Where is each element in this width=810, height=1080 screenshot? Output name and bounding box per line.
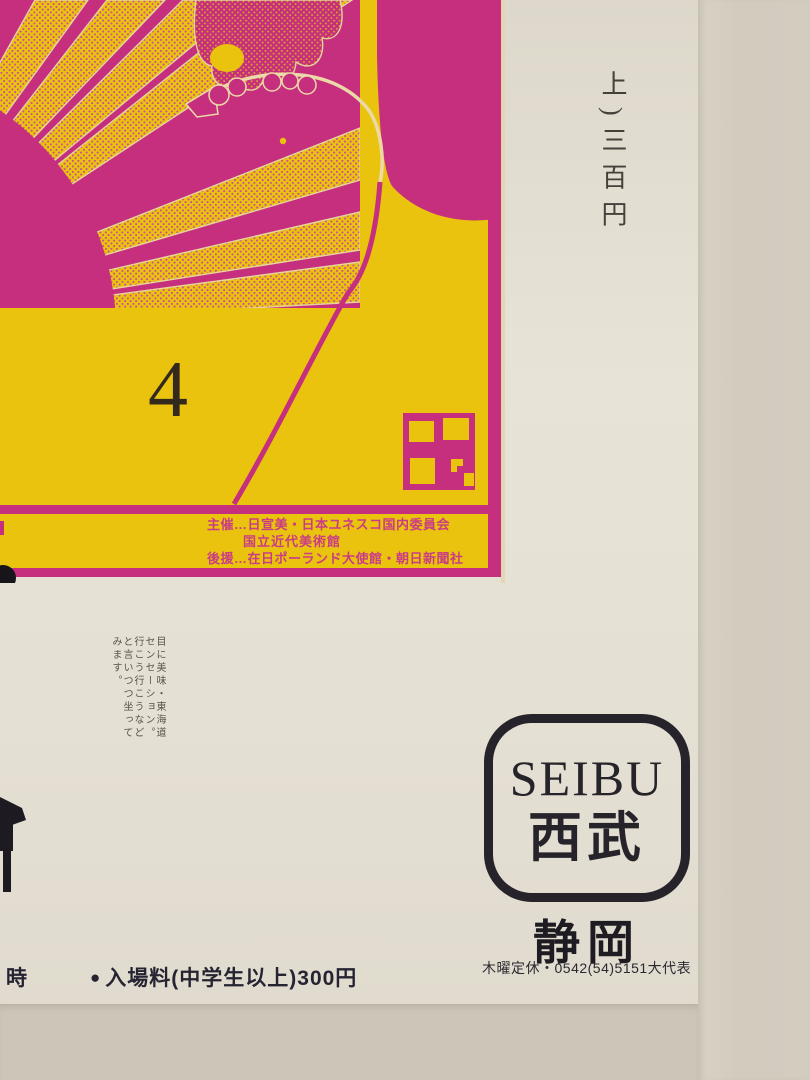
- price-note-vertical: 上)三百円: [594, 70, 631, 240]
- checkered-logo-icon: [403, 413, 475, 490]
- seibu-logo-kanji: 西武: [493, 811, 681, 865]
- background-bottom-surface: [0, 1004, 698, 1080]
- copy-text-vertical: 目に美味・東海道センセーション。行こう行こうなどと言いつつ坐ってみます。: [110, 636, 165, 742]
- number-4-label: 4: [148, 346, 188, 434]
- admission-line: 時●入場料(中学生以上)300円: [6, 962, 357, 992]
- credits-line-2: 国立近代美術館: [243, 534, 341, 549]
- credits-line-3: 後援…在日ポーランド大使館・朝日新聞社: [207, 551, 464, 566]
- store-info: 木曜定休・0542(54)5151大代表: [482, 958, 722, 978]
- credits-line-1: 主催…日宣美・日本ユネスコ国内委員会: [207, 517, 451, 532]
- black-glyph-fragment: [0, 795, 30, 895]
- seibu-logo-latin: SEIBU: [493, 749, 681, 807]
- seibu-logo: SEIBU 西武: [484, 714, 690, 902]
- sunburst-wave-artwork: 4 主催…日宣美・日本ユネスコ国内委員会 国立近代美術館 後援…在日ポーランド大…: [0, 0, 505, 583]
- admission-partial-char: 時: [6, 967, 28, 990]
- background-right-surface: [698, 0, 810, 1080]
- bullet-icon: ●: [90, 968, 101, 987]
- wave-body: [377, 0, 501, 220]
- poster-photo: 4 主催…日宣美・日本ユネスコ国内委員会 国立近代美術館 後援…在日ポーランド大…: [0, 0, 810, 1080]
- admission-text: 入場料(中学生以上)300円: [105, 967, 357, 990]
